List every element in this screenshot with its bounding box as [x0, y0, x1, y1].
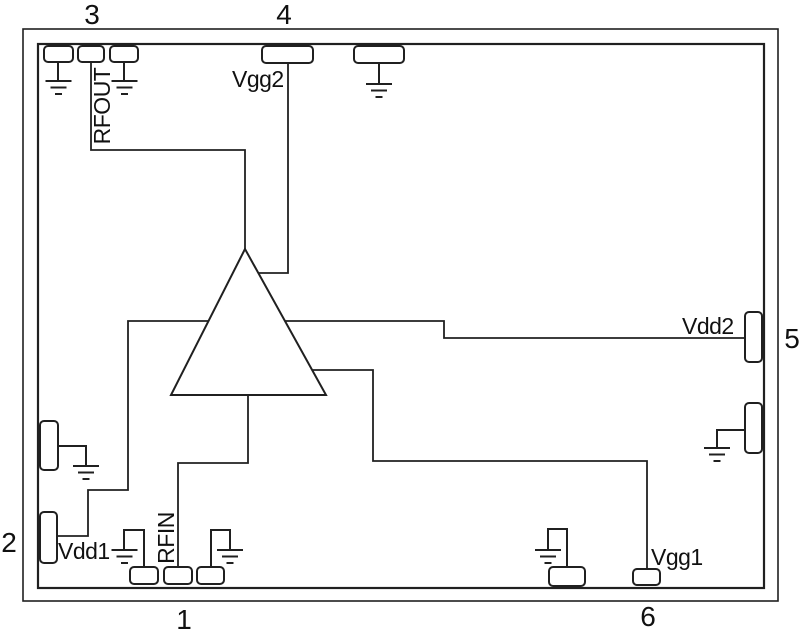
vgg2-trace	[258, 63, 288, 273]
pin-label-1: 1	[176, 604, 192, 632]
labels: 1 2 3 4 5 6 RFOUT Vgg2 Vdd2 Vdd1 RFIN Vg…	[1, 0, 800, 632]
ground-icon-bottom-left-b	[211, 530, 243, 568]
traces	[57, 62, 745, 570]
vdd2-trace	[285, 321, 745, 338]
ground-icon-bottom-left-a	[112, 530, 145, 568]
pad-bottom-gnd-c	[549, 567, 585, 586]
rfin-trace	[178, 394, 248, 568]
net-label-rfin: RFIN	[153, 512, 179, 564]
pad-top-gnd-c	[354, 46, 404, 63]
vdd1-trace	[57, 321, 208, 536]
chip-outline	[23, 29, 778, 601]
pin-label-5: 5	[784, 323, 800, 354]
pad-top-gnd-a	[44, 46, 73, 62]
pin-label-4: 4	[276, 0, 292, 30]
ground-icon-right-mid	[704, 430, 745, 461]
ground-icon-left-mid	[58, 446, 99, 479]
ground-icon-bottom-right	[535, 529, 567, 568]
net-label-vgg1: Vgg1	[651, 544, 703, 570]
pad-left-gnd	[40, 421, 58, 470]
pad-top-gnd-b	[110, 46, 138, 62]
amplifier-triangle-icon	[171, 249, 326, 395]
pad-right-gnd	[745, 403, 762, 453]
schematic-canvas: 1 2 3 4 5 6 RFOUT Vgg2 Vdd2 Vdd1 RFIN Vg…	[0, 0, 800, 632]
pad-rfin	[164, 567, 192, 584]
pad-vgg2	[262, 46, 313, 63]
vgg1-trace	[312, 370, 647, 570]
net-label-rfout: RFOUT	[89, 67, 115, 144]
ground-icon-top-left-b	[112, 62, 138, 94]
pad-vdd2	[745, 312, 762, 362]
ground-symbols	[46, 62, 746, 568]
amplifier-schematic: 1 2 3 4 5 6 RFOUT Vgg2 Vdd2 Vdd1 RFIN Vg…	[0, 0, 800, 632]
net-label-vgg2: Vgg2	[232, 66, 284, 92]
pin-label-6: 6	[640, 601, 656, 632]
net-label-vdd2: Vdd2	[682, 313, 734, 339]
net-label-vdd1: Vdd1	[58, 538, 110, 564]
chip-outline-inner	[38, 44, 764, 588]
chip-outline-outer	[23, 29, 778, 601]
pin-label-2: 2	[1, 527, 17, 558]
bond-pads	[40, 46, 762, 586]
pin-label-3: 3	[84, 0, 100, 30]
ground-icon-top-left-a	[46, 62, 72, 94]
pad-vgg1	[633, 569, 660, 585]
pad-bottom-gnd-a	[130, 567, 158, 584]
pad-bottom-gnd-b	[197, 567, 224, 584]
pad-rfout	[78, 46, 104, 62]
pad-vdd1	[40, 512, 57, 563]
ground-icon-top-mid	[366, 63, 392, 97]
